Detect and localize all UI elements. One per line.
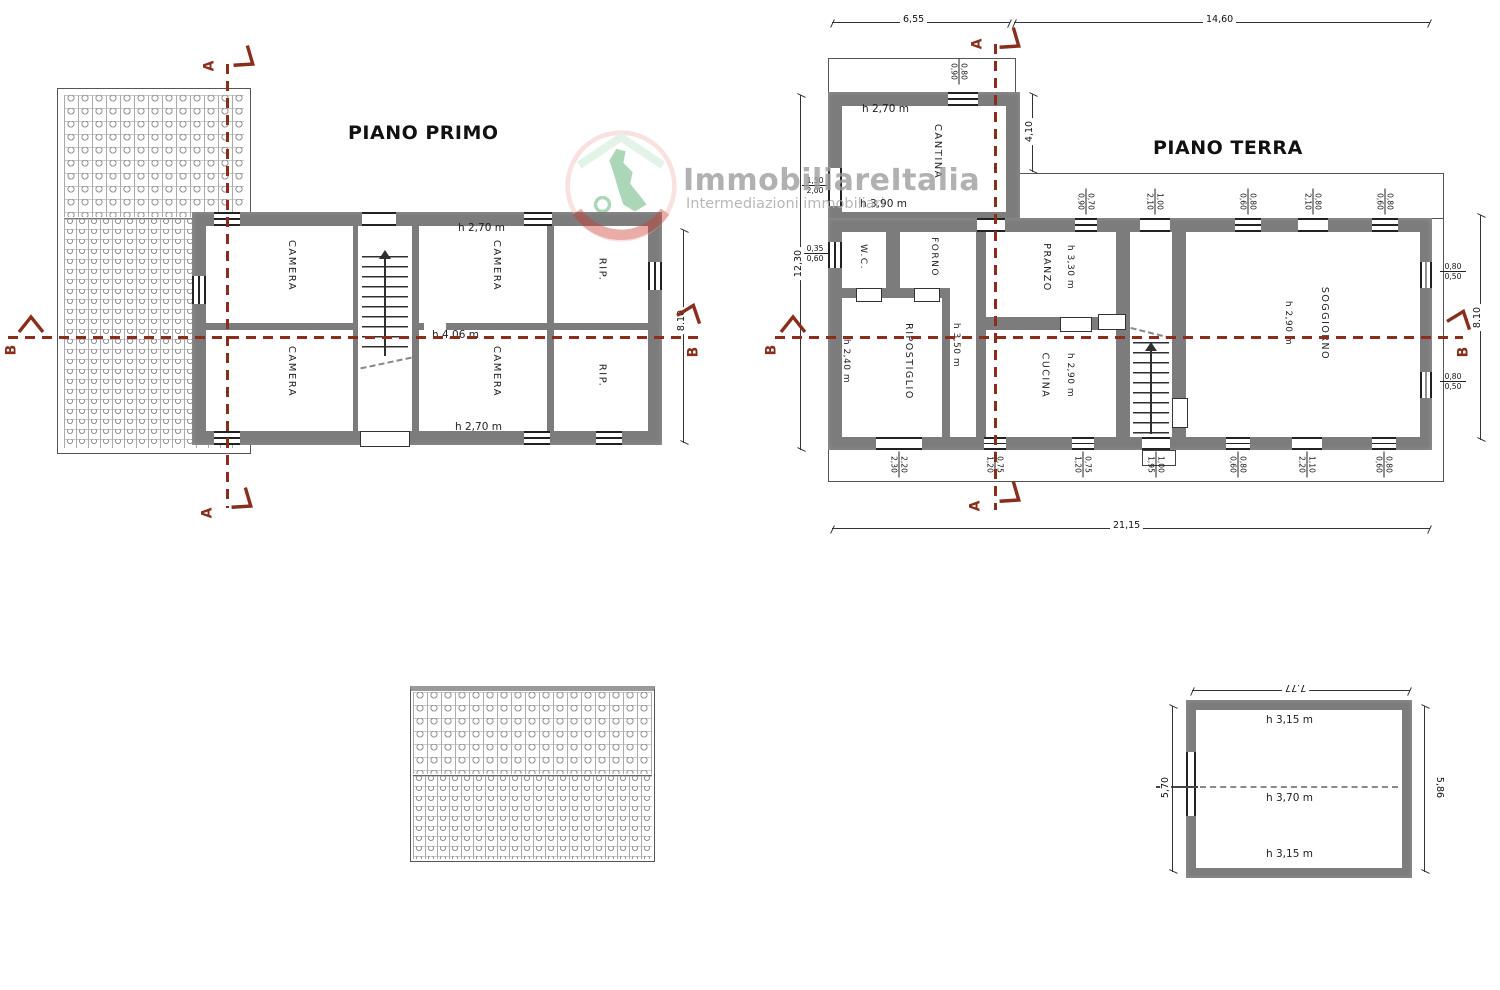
dim-right-1: 0,800,50: [1440, 262, 1466, 281]
camera-label-3: CAMERA: [491, 240, 502, 291]
pt-dim-left: 12,30: [793, 247, 804, 280]
dim-wc-left: 0,350,60: [802, 244, 828, 263]
attic-dim-left-line: [1172, 706, 1173, 872]
pt-dim-bottom: 21,15: [1110, 520, 1143, 531]
dim-top-1: 0,700,90: [1077, 189, 1096, 215]
ripostiglio-label: RIPOSTIGLIO: [903, 323, 914, 400]
pp-height-bottom: h 2,70 m: [455, 421, 502, 433]
pt-top-window-3: [1372, 218, 1398, 232]
floorplan-sheet: PIANO PRIMO CAMERA CAMERA CAMERA CAMERA …: [0, 0, 1500, 990]
section-a-letter-top-pt: A: [969, 39, 985, 50]
pp-window-left: [192, 276, 206, 304]
corridor-height: h 3,50 m: [951, 323, 961, 367]
pt-bottom-window-3: [1226, 437, 1250, 450]
stairs-pp-stem: [384, 252, 386, 356]
rip-label-2: RIP.: [596, 364, 607, 388]
camera-label-4: CAMERA: [491, 346, 502, 397]
section-b-line-pp: [8, 336, 700, 339]
pp-window-top-3: [524, 212, 552, 226]
roof-hatch-upper: [64, 95, 244, 217]
pt-bottom-frenchdoor: [1292, 437, 1322, 450]
rip-label-1: RIP.: [596, 258, 607, 282]
wc-left-window: [828, 242, 842, 268]
cantina-h-top: h 2,70 m: [862, 103, 909, 115]
attic-dim-right: 5,86: [1434, 774, 1445, 801]
pt-bottom-window-2: [1072, 437, 1094, 450]
stairhall: [1130, 232, 1172, 437]
dim-bottom-4: 1,001,95: [1147, 452, 1166, 478]
immobiliare-logo-icon: [563, 128, 679, 244]
camera-room-3: CAMERA: [419, 226, 547, 323]
section-a-letter-bottom-pp: A: [199, 508, 215, 519]
section-b-left-marker-pt: [778, 314, 808, 334]
section-b-letter-right-pt: B: [1455, 347, 1471, 358]
section-b-letter-left-pp: B: [3, 345, 19, 356]
stair-landing-door: [1098, 314, 1126, 330]
pp-window-right: [648, 262, 662, 290]
soggiorno-right-window-2: [1420, 372, 1432, 398]
attic-h-bottom: h 3,15 m: [1266, 848, 1313, 860]
wc-door: [856, 288, 882, 302]
pt-top-window-2: [1235, 218, 1261, 232]
soggiorno-stair-door: [1172, 398, 1188, 428]
section-a-letter-top-pp: A: [201, 61, 217, 72]
dim-top-3: 0,800,60: [1239, 189, 1258, 215]
wc-room: W.C.: [842, 232, 886, 288]
section-a-letter-bottom-pt: A: [967, 501, 983, 512]
stairs-pp-landing: [360, 431, 410, 447]
attic-ridge-line: [1200, 786, 1398, 788]
attic-dim-right-line: [1424, 706, 1425, 872]
dim-bottom-1: 2,202,30: [890, 452, 909, 478]
section-a-top-marker-pt: [996, 24, 1030, 60]
camera-label-2: CAMERA: [286, 346, 297, 397]
pp-height-middle: h 4,06 m: [432, 329, 479, 341]
dim-top-5: 0,800,60: [1376, 189, 1395, 215]
section-b-letter-right-pp: B: [685, 347, 701, 358]
dim-top-4: 0,802,10: [1304, 189, 1323, 215]
pp-window-bottom-2: [524, 431, 550, 445]
section-b-letter-left-pt: B: [763, 345, 779, 356]
dim-cantina-top: 0,800,90: [950, 59, 969, 85]
wc-label: W.C.: [858, 244, 868, 270]
section-a-top-marker-pp: [230, 42, 264, 78]
pranzo-room: PRANZO h 3,30 m: [986, 232, 1116, 317]
dim-bottom-3: 0,751,20: [1074, 452, 1093, 478]
pp-height-top: h 2,70 m: [458, 222, 505, 234]
watermark-tagline: Intermediazioni immobiliari: [686, 196, 885, 212]
stairwell-pp: [358, 226, 412, 431]
section-a-bottom-marker-pp: [228, 484, 262, 520]
pt-dim-topleft: 6,55: [900, 14, 927, 25]
pp-window-top-2: [362, 212, 396, 226]
ripostiglio-height: h 2,40 m: [841, 339, 851, 383]
cucina-room: CUCINA h 2,90 m: [986, 330, 1116, 437]
pt-top-door: [1140, 218, 1170, 232]
piano-primo-title: PIANO PRIMO: [348, 122, 499, 144]
cantina-bottom-door: [977, 218, 1005, 232]
pt-bottom-window-4: [1372, 437, 1396, 450]
watermark-brand: ImmobiliareItalia: [683, 163, 980, 198]
soggiorno-right-window-1: [1420, 262, 1432, 288]
pt-bottom-door-1: [876, 437, 922, 450]
attic-dim-top: 7.77: [1282, 682, 1309, 693]
dim-bottom-5: 0,800,60: [1229, 452, 1248, 478]
roof-plan: [410, 686, 655, 862]
pt-bottom-door-2: [1142, 437, 1170, 450]
cucina-height: h 2,90 m: [1065, 353, 1075, 397]
section-a-line-pt: [994, 44, 997, 510]
dim-top-2: 1,002,10: [1146, 189, 1165, 215]
rip-room-2: RIP.: [554, 330, 648, 431]
forno-door: [914, 288, 940, 302]
forno-label: FORNO: [929, 237, 939, 277]
pt-dim-topright: 14,60: [1203, 14, 1236, 25]
stairs-pp-arrow: [379, 250, 391, 259]
roof-plan-hatch-lower: [413, 775, 652, 859]
attic-h-middle: h 3,70 m: [1266, 792, 1313, 804]
pp-window-bottom-3: [596, 431, 622, 445]
pt-top-frenchdoor: [1298, 218, 1328, 232]
attic-left-opening: [1186, 752, 1196, 816]
cucina-label: CUCINA: [1039, 353, 1050, 399]
attic-room: h 3,15 m h 3,70 m h 3,15 m: [1196, 710, 1402, 868]
dim-bottom-7: 0,800,60: [1375, 452, 1394, 478]
attic-dim-left: 5,70: [1160, 774, 1171, 801]
stairs-pt-arrow: [1145, 342, 1157, 351]
section-b-left-marker-pp: [16, 314, 46, 334]
pranzo-height: h 3,30 m: [1065, 245, 1075, 289]
ripostiglio-room: RIPOSTIGLIO h 2,40 m: [842, 298, 942, 437]
section-b-line-pt: [775, 336, 1463, 339]
pt-top-window-1: [1075, 218, 1097, 232]
cantina-top-window: [948, 92, 978, 106]
pt-dim-cantina: 4,10: [1024, 118, 1035, 145]
roof-plan-hatch-upper: [413, 692, 652, 774]
attic-h-top: h 3,15 m: [1266, 714, 1313, 726]
camera-room-4: CAMERA: [419, 330, 547, 431]
soggiorno-label: SOGGIORNO: [1319, 287, 1330, 360]
stairs-pt-stem: [1150, 344, 1152, 434]
piano-terra-title: PIANO TERRA: [1153, 137, 1303, 159]
pranzo-cucina-door: [1060, 317, 1092, 332]
corridor: h 3,50 m: [950, 232, 976, 437]
stairs-pp-cutline: [360, 357, 411, 370]
section-a-line-pp: [226, 64, 229, 508]
dim-bottom-6: 1,102,20: [1298, 452, 1317, 478]
dim-right-2: 0,800,50: [1440, 372, 1466, 391]
section-a-bottom-marker-pt: [996, 478, 1030, 514]
pranzo-label: PRANZO: [1041, 243, 1052, 292]
soggiorno-room: SOGGIORNO h 2,90 m: [1186, 232, 1420, 437]
camera-label-1: CAMERA: [286, 240, 297, 291]
